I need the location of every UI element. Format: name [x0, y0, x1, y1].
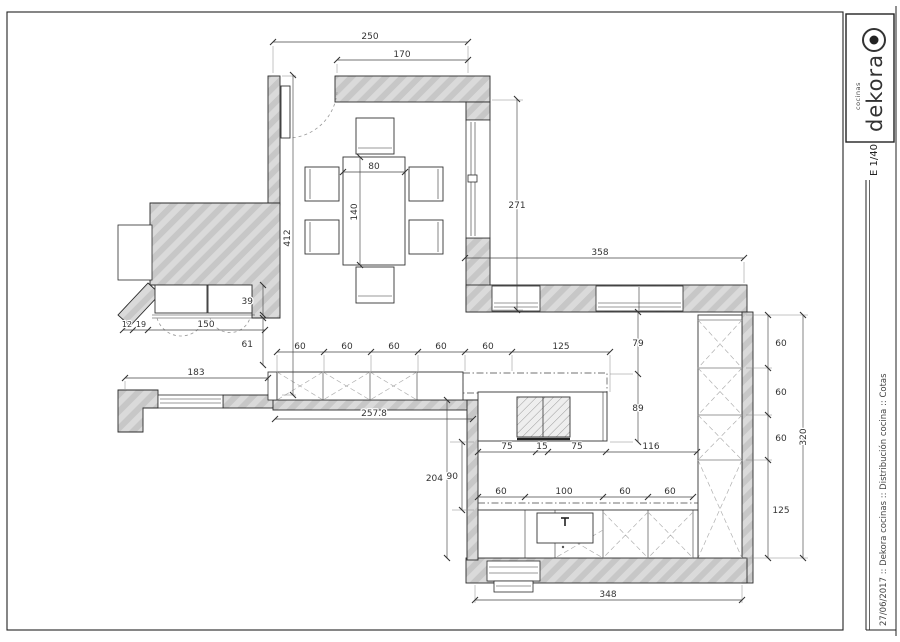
tall-cabinet-column [698, 315, 742, 558]
kitchen-island [478, 392, 607, 441]
dim-204: 204 [426, 474, 443, 484]
dim-39: 39 [242, 297, 254, 307]
dim-89: 89 [632, 404, 644, 414]
chair [305, 220, 339, 254]
dim-257-8: 257.8 [361, 409, 387, 419]
dim-358: 358 [591, 248, 608, 258]
chair [356, 118, 394, 154]
dim-60: 60 [664, 487, 676, 497]
dim-348: 348 [599, 590, 616, 600]
door-swing-arc [290, 92, 337, 138]
dim-19: 19 [136, 320, 146, 329]
dim-run-60: 60 [341, 342, 353, 352]
dim-12: 12 [122, 320, 132, 329]
dim-320: 320 [799, 428, 809, 445]
dim-run-60: 60 [294, 342, 306, 352]
dim-75: 75 [571, 442, 582, 452]
title-block: dekora cocinas E 1/40 27/06/2017 :: Deko… [846, 14, 894, 626]
scale-label: E 1/40 [869, 144, 880, 176]
dim-15: 15 [536, 442, 547, 452]
chair [409, 167, 443, 201]
dim-run-125: 125 [552, 342, 569, 352]
sink [537, 513, 593, 548]
window-bottom-left [158, 395, 223, 408]
dim-250: 250 [361, 32, 378, 42]
dim-183: 183 [187, 368, 204, 378]
logo-brand-text: dekora [863, 54, 887, 132]
dim-150: 150 [197, 320, 214, 330]
dining-set [305, 118, 443, 303]
logo-spiral-dot-icon [870, 36, 879, 45]
dim-125: 125 [772, 506, 789, 516]
chair [409, 220, 443, 254]
entry-door [281, 86, 337, 138]
window-topright-1 [492, 286, 540, 311]
dim-116: 116 [642, 442, 659, 452]
window-right-upper [466, 120, 490, 238]
bottom-counter [478, 503, 698, 558]
dim-60: 60 [775, 339, 787, 349]
floor-plan-svg: 250 170 80 140 412 271 358 79 89 39 12 1… [0, 0, 900, 642]
chair [305, 167, 339, 201]
dim-100: 100 [555, 487, 572, 497]
dim-412: 412 [283, 229, 293, 246]
dim-140: 140 [350, 203, 360, 220]
vent-bottom-wall [487, 561, 540, 592]
dim-60: 60 [619, 487, 631, 497]
dim-run-60: 60 [435, 342, 447, 352]
dim-61: 61 [242, 340, 253, 350]
chair [356, 267, 394, 303]
dim-170: 170 [393, 50, 410, 60]
cooktop [517, 397, 570, 437]
dim-271: 271 [508, 201, 525, 211]
window-topright-2 [596, 286, 683, 311]
drawing-sheet: 250 170 80 140 412 271 358 79 89 39 12 1… [0, 0, 900, 642]
dim-90: 90 [447, 472, 459, 482]
dim-80: 80 [368, 162, 380, 172]
wall-cabinet-dashed [463, 373, 607, 393]
dim-60: 60 [775, 388, 787, 398]
dim-run-60: 60 [388, 342, 400, 352]
door-leaf [281, 86, 290, 138]
dim-60: 60 [775, 434, 787, 444]
dim-run-60: 60 [482, 342, 494, 352]
dim-75: 75 [501, 442, 512, 452]
dim-79: 79 [632, 339, 644, 349]
footer-title: 27/06/2017 :: Dekora cocinas :: Distribu… [878, 373, 889, 626]
dim-60: 60 [495, 487, 507, 497]
logo-sub-text: cocinas [854, 82, 862, 110]
